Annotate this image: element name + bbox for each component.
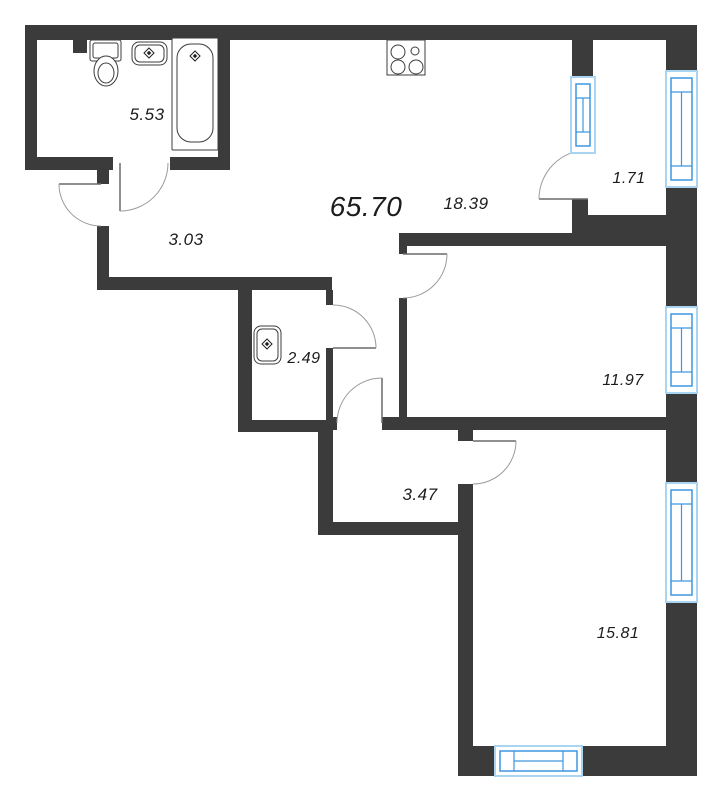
door-bathroom-swing-arc — [120, 163, 168, 211]
wall-segment — [666, 187, 697, 307]
wall-segment — [399, 298, 407, 417]
burner-icon — [391, 45, 405, 59]
wall-segment — [666, 602, 697, 746]
room-label-bedroom-2: 15.81 — [597, 625, 640, 643]
burner-icon — [391, 60, 405, 74]
wall-segment — [399, 246, 407, 254]
wall-segment — [170, 157, 230, 170]
wall-segment — [97, 170, 109, 184]
door-wc-swing-arc — [333, 305, 376, 348]
wall-segment — [382, 417, 667, 430]
door-bedroom-1-swing-arc — [403, 254, 447, 298]
room-label-bathroom: 5.53 — [129, 105, 164, 125]
wall-segment — [25, 25, 37, 170]
wall-segment — [318, 522, 470, 535]
wall-segment — [218, 40, 230, 170]
wall-segment — [25, 25, 697, 40]
wall-segment — [238, 420, 333, 432]
room-label-bedroom-1: 11.97 — [602, 372, 643, 390]
wall-segment — [238, 277, 252, 432]
toilet-bowl-inner — [98, 63, 114, 83]
wall-segment — [458, 484, 473, 746]
wall-segment — [572, 40, 593, 77]
wall-segment — [326, 348, 333, 420]
total-area-label: 65.70 — [330, 191, 403, 223]
burner-icon — [411, 47, 419, 55]
wall-segment — [97, 277, 332, 290]
door-bedroom-2-swing-arc — [473, 441, 516, 484]
wall-segment — [588, 215, 667, 246]
door-entrance-swing-arc — [59, 184, 101, 226]
floor-plan-drawing — [0, 0, 726, 800]
wall-segment — [73, 37, 87, 53]
room-label-inner-hall: 3.47 — [402, 485, 437, 505]
room-label-wc: 2.49 — [287, 350, 320, 368]
room-label-balcony: 1.71 — [612, 170, 645, 188]
room-label-kitchen-living: 18.39 — [443, 194, 488, 214]
wall-segment — [666, 25, 697, 72]
wall-segment — [25, 157, 113, 170]
wall-segment — [399, 233, 588, 246]
wall-segment — [458, 430, 473, 441]
burner-icon — [409, 60, 423, 74]
wall-segment — [318, 432, 333, 535]
door-inner-hall-swing-arc — [337, 378, 382, 423]
wall-segment — [666, 393, 697, 483]
room-label-entry-hall: 3.03 — [168, 230, 203, 250]
wall-segment — [326, 290, 333, 305]
door-balcony-swing-arc — [539, 150, 588, 199]
floor-plan-canvas: 65.70 5.53 3.03 18.39 1.71 2.49 11.97 3.… — [0, 0, 726, 800]
wall-segment — [326, 417, 337, 430]
